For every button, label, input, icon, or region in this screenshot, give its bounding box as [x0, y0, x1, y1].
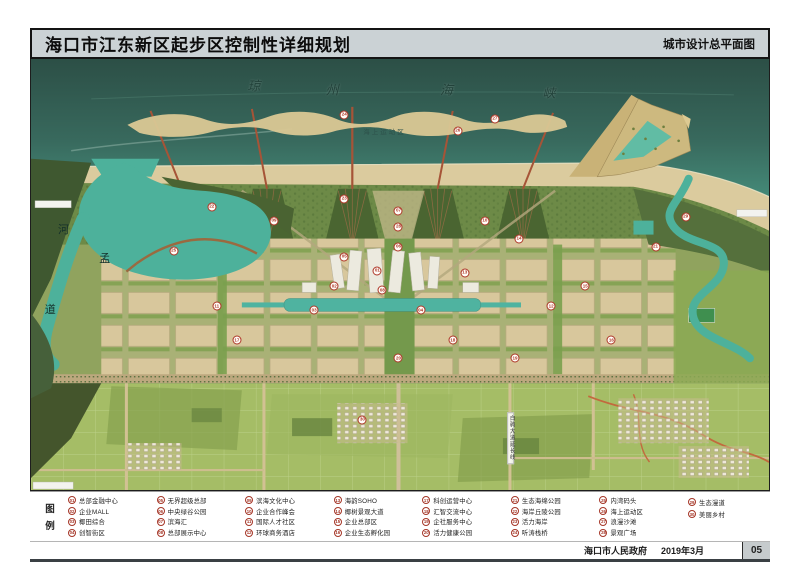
jiangdong-avenue [31, 374, 769, 383]
legend-item-21: 21生态海绵公园 [511, 495, 600, 505]
legend-item-24: 24听涛栈桥 [511, 528, 600, 538]
legend-item-label: 椰田综合 [79, 517, 105, 526]
map-marker-26: 26 [453, 126, 462, 135]
legend-column-2: 05无界超级总部06中央绿谷公园07滨海汇08总部展示中心 [157, 495, 246, 538]
legend-item-label: 椰树景观大道 [345, 507, 384, 516]
map-marker-05: 05 [340, 252, 349, 261]
legend-item-label: 滨海汇 [168, 517, 188, 526]
legend-item-01: 01总部金融中心 [68, 495, 157, 505]
legend-item-label: 海韵SOHO [345, 496, 377, 505]
legend-item-08: 08总部展示中心 [157, 528, 246, 538]
legend-item-label: 滨海文化中心 [256, 496, 295, 505]
legend-item-12: 12环球商务酒店 [245, 528, 334, 538]
master-plan-map: 琼 州 海 峡 海上运动区 河 孟 道 白驹大道延长线 010203040506… [30, 59, 770, 491]
legend-item-number: 03 [68, 518, 76, 526]
legend-item-25: 25内湾码头 [599, 495, 688, 505]
legend-item-27: 27浪漫沙滩 [599, 517, 688, 527]
legend-item-number: 15 [334, 518, 342, 526]
legend-item-label: 环球商务酒店 [256, 528, 295, 537]
legend-item-number: 29 [688, 498, 696, 506]
map-marker-22: 22 [207, 202, 216, 211]
legend-item-05: 05无界超级总部 [157, 495, 246, 505]
legend-item-03: 03椰田综合 [68, 517, 157, 527]
map-marker-20: 20 [394, 354, 403, 363]
legend-item-26: 26海上运动区 [599, 506, 688, 516]
legend-item-label: 美丽乡村 [699, 510, 725, 519]
legend-item-label: 创智街区 [79, 528, 105, 537]
map-marker-03: 03 [310, 306, 319, 315]
legend-item-label: 企业MALL [79, 507, 109, 516]
map-marker-23: 23 [340, 194, 349, 203]
legend-column-6: 21生态海绵公园22海岸丘陵公园23活力海岸24听涛栈桥 [511, 495, 600, 538]
legend-item-label: 国际人才社区 [256, 517, 295, 526]
map-marker-24: 24 [340, 110, 349, 119]
legend-item-02: 02企业MALL [68, 506, 157, 516]
legend-item-label: 景观广场 [610, 528, 636, 537]
map-marker-15: 15 [581, 282, 590, 291]
map-marker-09: 09 [269, 216, 278, 225]
legend-column-5: 17科创运营中心18汇智交流中心19企社服务中心20活力健康公园 [422, 495, 511, 538]
legend-item-label: 听涛栈桥 [522, 528, 548, 537]
legend-item-28: 28景观广场 [599, 528, 688, 538]
map-marker-30: 30 [358, 416, 367, 425]
legend-item-19: 19企社服务中心 [422, 517, 511, 527]
legend-item-label: 中央绿谷公园 [168, 507, 207, 516]
legend-column-8: 29生态漫道30美丽乡村 [688, 495, 764, 538]
legend-item-number: 10 [245, 507, 253, 515]
legend-item-number: 09 [245, 496, 253, 504]
legend-item-06: 06中央绿谷公园 [157, 506, 246, 516]
map-marker-10: 10 [480, 216, 489, 225]
legend-item-18: 18汇智交流中心 [422, 506, 511, 516]
legend-column-7: 25内湾码头26海上运动区27浪漫沙滩28景观广场 [599, 495, 688, 538]
legend-item-number: 01 [68, 496, 76, 504]
map-marker-13: 13 [460, 268, 469, 277]
legend-item-number: 23 [511, 518, 519, 526]
legend-column-1: 01总部金融中心02企业MALL03椰田综合04创智街区 [68, 495, 157, 538]
legend-title: 图 例 [38, 501, 62, 532]
legend-item-14: 14椰树景观大道 [334, 506, 423, 516]
map-marker-27: 27 [490, 114, 499, 123]
legend-item-label: 总部展示中心 [168, 528, 207, 537]
legend-item-label: 海上运动区 [610, 507, 642, 516]
map-marker-19: 19 [510, 354, 519, 363]
legend-item-label: 无界超级总部 [168, 496, 207, 505]
map-marker-29: 29 [681, 212, 690, 221]
map-marker-02: 02 [330, 282, 339, 291]
map-marker-25: 25 [169, 246, 178, 255]
map-marker-04: 04 [416, 306, 425, 315]
legend-item-17: 17科创运营中心 [422, 495, 511, 505]
publish-date: 2019年3月 [661, 544, 704, 557]
map-marker-11: 11 [212, 302, 221, 311]
legend-item-number: 12 [245, 529, 253, 537]
map-marker-21: 21 [651, 242, 660, 251]
map-marker-18: 18 [448, 336, 457, 345]
map-marker-08: 08 [378, 286, 387, 295]
legend-item-label: 企业总部区 [345, 517, 377, 526]
legend-item-number: 14 [334, 507, 342, 515]
legend-item-label: 企业生态孵化园 [345, 528, 390, 537]
legend-item-label: 海岸丘陵公园 [522, 507, 561, 516]
map-artwork [31, 59, 769, 490]
legend-item-number: 22 [511, 507, 519, 515]
page-number: 05 [742, 542, 770, 559]
legend-item-number: 20 [422, 529, 430, 537]
page-title: 海口市江东新区起步区控制性详细规划 [45, 31, 351, 56]
legend-title-char-1: 图 [45, 501, 55, 515]
legend-item-number: 28 [599, 529, 607, 537]
legend-item-number: 07 [157, 518, 165, 526]
legend-item-16: 16企业生态孵化园 [334, 528, 423, 538]
map-marker-06: 06 [394, 242, 403, 251]
legend-item-number: 02 [68, 507, 76, 515]
legend-item-number: 11 [245, 518, 253, 526]
legend-item-label: 总部金融中心 [79, 496, 118, 505]
legend-column-4: 13海韵SOHO14椰树景观大道15企业总部区16企业生态孵化园 [334, 495, 423, 538]
map-marker-17: 17 [232, 336, 241, 345]
map-marker-28: 28 [394, 222, 403, 231]
map-marker-16: 16 [607, 336, 616, 345]
legend-item-20: 20活力健康公园 [422, 528, 511, 538]
drawing-name: 城市设计总平面图 [663, 36, 755, 52]
legend-item-04: 04创智街区 [68, 528, 157, 538]
legend-item-22: 22海岸丘陵公园 [511, 506, 600, 516]
legend-item-number: 05 [157, 496, 165, 504]
legend-item-number: 27 [599, 518, 607, 526]
legend-item-label: 汇智交流中心 [433, 507, 472, 516]
legend-title-char-2: 例 [45, 518, 55, 532]
legend-item-label: 生态海绵公园 [522, 496, 561, 505]
legend-item-number: 21 [511, 496, 519, 504]
legend-item-09: 09滨海文化中心 [245, 495, 334, 505]
legend-item-07: 07滨海汇 [157, 517, 246, 527]
legend-item-number: 04 [68, 529, 76, 537]
publisher: 海口市人民政府 [584, 544, 647, 557]
map-marker-12: 12 [547, 302, 556, 311]
legend-item-label: 企业合作峰会 [256, 507, 295, 516]
legend-items: 01总部金融中心02企业MALL03椰田综合04创智街区05无界超级总部06中央… [68, 495, 764, 538]
legend-item-number: 06 [157, 507, 165, 515]
legend-item-label: 活力健康公园 [433, 528, 472, 537]
legend-item-number: 13 [334, 496, 342, 504]
footer-spacer [30, 542, 584, 559]
legend-item-30: 30美丽乡村 [688, 509, 764, 519]
map-marker-14: 14 [514, 234, 523, 243]
footer-text: 海口市人民政府 2019年3月 [584, 542, 704, 559]
legend-item-label: 内湾码头 [610, 496, 636, 505]
legend-item-number: 19 [422, 518, 430, 526]
legend-item-13: 13海韵SOHO [334, 495, 423, 505]
legend-item-number: 16 [334, 529, 342, 537]
legend-item-number: 25 [599, 496, 607, 504]
legend-item-number: 08 [157, 529, 165, 537]
legend: 图 例 01总部金融中心02企业MALL03椰田综合04创智街区05无界超级总部… [30, 491, 770, 542]
legend-item-label: 企社服务中心 [433, 517, 472, 526]
legend-item-number: 17 [422, 496, 430, 504]
legend-item-29: 29生态漫道 [688, 497, 764, 507]
legend-item-label: 浪漫沙滩 [610, 517, 636, 526]
plan-sheet: 海口市江东新区起步区控制性详细规划 城市设计总平面图 [30, 28, 770, 562]
sheet-header: 海口市江东新区起步区控制性详细规划 城市设计总平面图 [30, 28, 770, 59]
map-marker-01: 01 [373, 266, 382, 275]
legend-item-label: 活力海岸 [522, 517, 548, 526]
legend-item-label: 科创运营中心 [433, 496, 472, 505]
legend-column-3: 09滨海文化中心10企业合作峰会11国际人才社区12环球商务酒店 [245, 495, 334, 538]
legend-item-15: 15企业总部区 [334, 517, 423, 527]
legend-item-number: 26 [599, 507, 607, 515]
legend-item-number: 24 [511, 529, 519, 537]
legend-item-number: 18 [422, 507, 430, 515]
map-marker-07: 07 [394, 206, 403, 215]
sheet-footer: 海口市人民政府 2019年3月 05 [30, 542, 770, 562]
legend-item-10: 10企业合作峰会 [245, 506, 334, 516]
legend-item-label: 生态漫道 [699, 498, 725, 507]
legend-item-23: 23活力海岸 [511, 517, 600, 527]
legend-item-11: 11国际人才社区 [245, 517, 334, 527]
legend-item-number: 30 [688, 510, 696, 518]
